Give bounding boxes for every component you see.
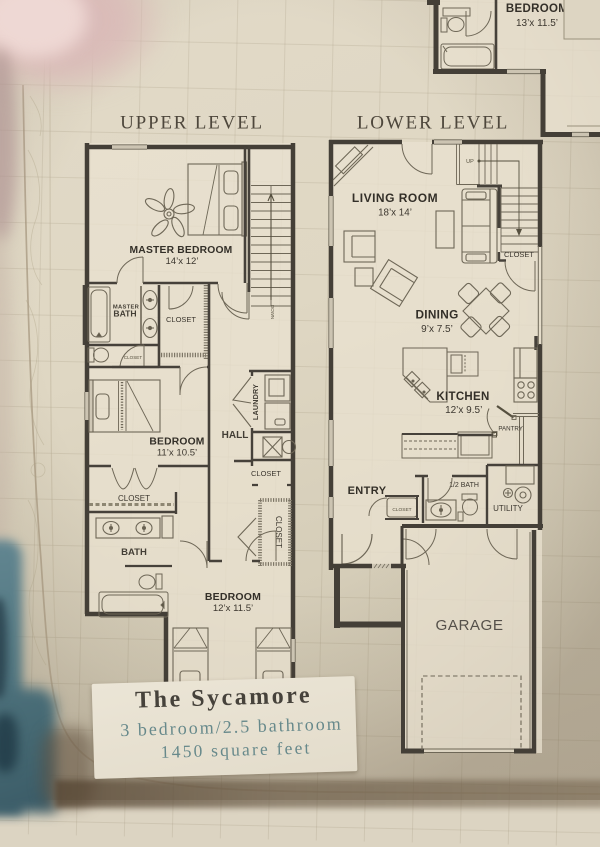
svg-text:CLOSET: CLOSET [118,494,150,503]
svg-text:HALL: HALL [222,430,249,441]
svg-text:BEDROOM: BEDROOM [149,437,204,448]
svg-text:CLOSET: CLOSET [504,250,534,259]
svg-text:14’x 12’: 14’x 12’ [165,256,198,267]
svg-text:BATH: BATH [121,547,147,558]
svg-text:CLOSET: CLOSET [251,469,281,478]
svg-text:CLOSET: CLOSET [124,355,143,360]
svg-text:PANTRY: PANTRY [498,426,523,433]
svg-text:BEDROOM: BEDROOM [506,3,568,15]
svg-text:LIVING ROOM: LIVING ROOM [352,191,438,205]
svg-text:KITCHEN: KITCHEN [436,391,489,403]
svg-text:CLOSET: CLOSET [392,507,411,513]
svg-text:CLOSET: CLOSET [274,516,283,548]
svg-text:BEDROOM: BEDROOM [205,591,261,603]
svg-text:LOWER LEVEL: LOWER LEVEL [357,113,509,134]
svg-text:11’x 10.5’: 11’x 10.5’ [157,448,197,459]
svg-text:UTILITY: UTILITY [493,504,523,513]
svg-text:13’x 11.5’: 13’x 11.5’ [516,18,558,29]
svg-text:DINING: DINING [415,308,458,322]
svg-text:DOWN: DOWN [270,305,275,319]
svg-text:UP: UP [466,159,474,165]
svg-text:MASTER BEDROOM: MASTER BEDROOM [130,245,233,256]
svg-text:12’x 9.5’: 12’x 9.5’ [445,405,482,416]
svg-text:18’x 14’: 18’x 14’ [378,208,412,219]
svg-text:9’x 7.5’: 9’x 7.5’ [421,324,453,335]
svg-text:BATH: BATH [113,309,136,319]
svg-text:LAUNDRY: LAUNDRY [251,384,260,420]
svg-text:GARAGE: GARAGE [436,617,504,634]
svg-text:12’x 11.5’: 12’x 11.5’ [213,603,253,614]
svg-text:UPPER LEVEL: UPPER LEVEL [120,113,264,134]
svg-text:1/2 BATH: 1/2 BATH [449,482,479,489]
svg-text:ENTRY: ENTRY [348,485,387,497]
svg-text:CLOSET: CLOSET [166,315,196,324]
